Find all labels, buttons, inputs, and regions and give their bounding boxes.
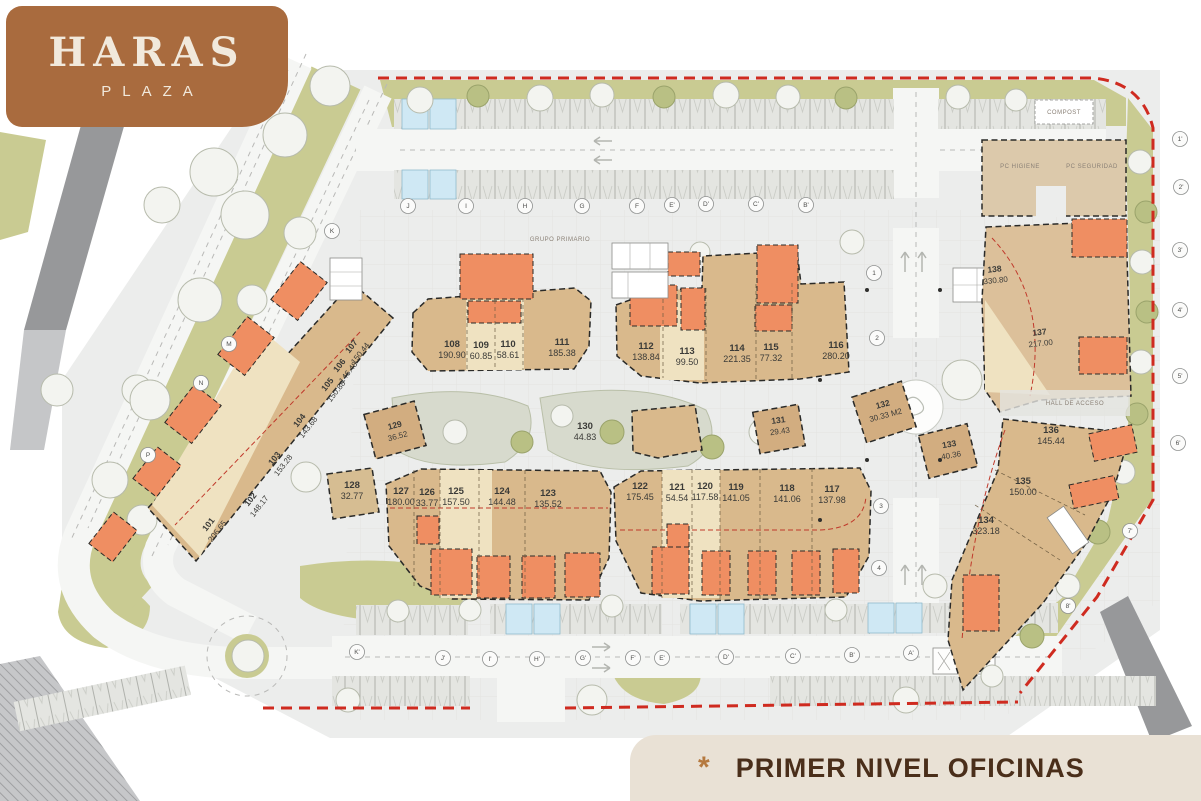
tree-icon [284, 217, 316, 249]
tree-icon [263, 113, 307, 157]
svg-text:4: 4 [877, 565, 881, 572]
tree-icon [1136, 301, 1158, 323]
grid-bubble-bottom: J' [436, 651, 451, 666]
svg-text:5': 5' [1178, 373, 1183, 380]
accessible-parking-stall [430, 170, 456, 199]
grid-bubble-left: N [194, 376, 209, 391]
tree-icon [946, 85, 970, 109]
tree-icon [776, 85, 800, 109]
grid-bubble-right: 4' [1173, 303, 1188, 318]
tree-icon [942, 360, 982, 400]
grid-bubble-center: 4 [872, 561, 887, 576]
plan-legend: * PRIMER NIVEL OFICINAS [630, 735, 1201, 801]
tree-icon [310, 66, 350, 106]
svg-text:113: 113 [679, 346, 694, 357]
svg-text:D': D' [723, 654, 729, 661]
accessible-parking-stall [430, 99, 456, 129]
tree-icon [92, 462, 128, 498]
terrace [431, 549, 472, 595]
svg-text:138: 138 [987, 263, 1002, 274]
tree-icon [232, 640, 264, 672]
pc-notch [1036, 186, 1066, 217]
svg-text:145.44: 145.44 [1037, 436, 1065, 446]
svg-text:K: K [330, 228, 335, 235]
brand-subtitle: PLAZA [90, 83, 204, 100]
svg-text:F': F' [630, 655, 635, 662]
svg-text:323.18: 323.18 [972, 526, 1000, 536]
svg-text:1': 1' [1178, 136, 1183, 143]
terrace [681, 288, 705, 330]
svg-text:117: 117 [824, 484, 839, 495]
brand-logo: HARAS PLAZA [6, 6, 288, 127]
svg-text:120: 120 [697, 481, 713, 492]
grid-bubble-top: E' [665, 198, 680, 213]
svg-text:7': 7' [1128, 528, 1133, 535]
grid-bubble-right: 5' [1173, 369, 1188, 384]
svg-text:K': K' [354, 649, 360, 656]
grid-bubble-bottom: B' [845, 648, 860, 663]
grid-bubble-center: 3 [874, 499, 889, 514]
svg-text:121: 121 [669, 482, 686, 493]
tree-icon [221, 191, 269, 239]
svg-text:3: 3 [879, 503, 883, 510]
svg-text:180.00: 180.00 [387, 497, 415, 507]
brand-title: HARAS [49, 33, 246, 73]
svg-text:F: F [635, 203, 639, 210]
grid-bubble-bottom: H' [530, 652, 545, 667]
tree-icon [601, 595, 623, 617]
tree-icon [1130, 250, 1154, 274]
svg-text:2': 2' [1179, 184, 1184, 191]
tree-icon [590, 83, 614, 107]
svg-text:8': 8' [1066, 603, 1071, 610]
tree-icon [467, 85, 489, 107]
svg-text:150.00: 150.00 [1009, 487, 1037, 497]
tree-icon [1005, 89, 1027, 111]
terrace [833, 549, 859, 593]
svg-text:280.20: 280.20 [822, 351, 850, 361]
terrace [792, 551, 820, 595]
svg-text:C': C' [790, 653, 796, 660]
grid-bubble-right: 8' [1061, 599, 1076, 614]
grid-bubble-top: C' [749, 197, 764, 212]
tree-icon [407, 87, 433, 113]
svg-text:131: 131 [771, 414, 787, 426]
svg-text:60.85: 60.85 [470, 351, 493, 361]
svg-text:H': H' [534, 656, 540, 663]
grid-bubble-top: G [575, 199, 590, 214]
svg-text:123: 123 [540, 488, 556, 499]
svg-text:141.05: 141.05 [722, 493, 750, 503]
svg-text:157.50: 157.50 [442, 497, 470, 507]
column-dot [818, 518, 822, 522]
unit-label-121: 12154.54 [666, 482, 689, 503]
terrace [417, 516, 439, 544]
svg-text:141.06: 141.06 [773, 494, 801, 504]
tree-icon [291, 462, 321, 492]
parking-row [356, 605, 468, 635]
grid-bubble-bottom: K' [350, 645, 365, 660]
tree-icon [130, 380, 170, 420]
svg-text:127: 127 [393, 486, 409, 497]
tree-icon [511, 431, 533, 453]
accessible-parking-stall [402, 170, 428, 199]
svg-text:111: 111 [555, 337, 571, 348]
parking-row [394, 99, 894, 129]
svg-text:6': 6' [1176, 440, 1181, 447]
accessible-parking-stall [534, 604, 560, 634]
tree-icon [527, 85, 553, 111]
plan-level-title: PRIMER NIVEL OFICINAS [736, 753, 1085, 784]
tree-icon [237, 285, 267, 315]
tree-icon [1020, 624, 1044, 648]
svg-text:118: 118 [779, 483, 794, 494]
svg-text:117.58: 117.58 [692, 492, 719, 502]
svg-text:33.77: 33.77 [416, 498, 439, 508]
unit-label-126: 12633.77 [416, 487, 439, 508]
svg-text:D': D' [703, 201, 709, 208]
svg-text:138.84: 138.84 [632, 352, 660, 362]
pc-seguridad-label: PC SEGURIDAD [1066, 164, 1118, 170]
svg-text:4': 4' [1178, 307, 1183, 314]
terrace [702, 551, 730, 595]
svg-text:J': J' [441, 655, 446, 662]
tree-icon [713, 82, 739, 108]
svg-text:G: G [579, 203, 584, 210]
svg-text:E': E' [659, 655, 665, 662]
terrace [460, 254, 533, 299]
svg-text:N: N [199, 380, 204, 387]
svg-text:I: I [465, 203, 467, 210]
column-dot [865, 288, 869, 292]
tree-icon [1129, 350, 1153, 374]
svg-text:2: 2 [875, 335, 879, 342]
svg-text:134: 134 [978, 515, 995, 526]
grid-bubble-left: K [325, 224, 340, 239]
grid-bubble-top: D' [699, 197, 714, 212]
tree-icon [1128, 150, 1152, 174]
column-dot [938, 288, 942, 292]
accessible-parking-stall [690, 604, 716, 634]
svg-text:221.35: 221.35 [723, 354, 751, 364]
svg-text:M: M [226, 341, 231, 348]
svg-text:B': B' [803, 202, 809, 209]
tree-icon [387, 600, 409, 622]
terrace [652, 547, 689, 594]
svg-text:3': 3' [1178, 247, 1183, 254]
accessible-parking-stall [506, 604, 532, 634]
svg-text:115: 115 [763, 342, 779, 353]
tree-icon [653, 86, 675, 108]
tree-icon [190, 148, 238, 196]
svg-text:77.32: 77.32 [760, 353, 783, 363]
hall-de-acceso-label: HALL DE ACCESO [1046, 401, 1104, 407]
svg-text:108: 108 [444, 339, 460, 350]
tree-icon [144, 187, 180, 223]
grid-bubble-right: 7' [1123, 524, 1138, 539]
terrace [1079, 337, 1127, 374]
entrance-south [497, 658, 565, 722]
tree-icon [551, 405, 573, 427]
svg-text:C': C' [753, 201, 759, 208]
svg-text:112: 112 [638, 341, 653, 352]
svg-text:32.77: 32.77 [341, 491, 364, 501]
svg-text:119: 119 [728, 482, 743, 493]
svg-text:185.38: 185.38 [548, 348, 576, 358]
terrace [963, 575, 999, 631]
grid-bubble-center: 2 [870, 331, 885, 346]
svg-text:124: 124 [494, 486, 511, 497]
tree-icon [600, 420, 624, 444]
grid-bubble-bottom: I' [483, 652, 498, 667]
svg-text:128: 128 [344, 480, 360, 491]
tree-icon [443, 420, 467, 444]
svg-text:A': A' [908, 650, 914, 657]
grid-bubble-right: 3' [1173, 243, 1188, 258]
grid-bubble-bottom: A' [904, 646, 919, 661]
grid-bubble-right: 6' [1171, 436, 1186, 451]
svg-text:54.54: 54.54 [666, 493, 689, 503]
grid-bubble-top: J [401, 199, 416, 214]
svg-text:G': G' [580, 655, 586, 662]
grid-bubble-right: 1' [1173, 132, 1188, 147]
terrace [468, 301, 521, 323]
compost-label: COMPOST [1047, 110, 1081, 116]
tree-icon [41, 374, 73, 406]
svg-text:137.98: 137.98 [818, 495, 846, 505]
building-unit-130 [632, 405, 702, 458]
svg-text:110: 110 [500, 339, 515, 350]
grupo-primario-label: GRUPO PRIMARIO [530, 237, 590, 243]
svg-text:190.90: 190.90 [438, 350, 466, 360]
tree-icon [178, 278, 222, 322]
grid-bubble-left: M [222, 337, 237, 352]
terrace [668, 252, 700, 276]
grid-bubble-bottom: F' [626, 651, 641, 666]
terrace [748, 551, 776, 595]
unit-label-109: 10960.85 [470, 340, 493, 361]
grid-bubble-bottom: D' [719, 650, 734, 665]
grid-bubble-top: I [459, 199, 474, 214]
svg-text:109: 109 [473, 340, 489, 351]
grid-bubble-bottom: G' [576, 651, 591, 666]
grid-bubble-bottom: E' [655, 651, 670, 666]
svg-text:136: 136 [1043, 425, 1059, 436]
svg-text:H: H [523, 203, 528, 210]
svg-text:125: 125 [448, 486, 465, 497]
svg-text:I': I' [488, 656, 491, 663]
terrace [757, 245, 798, 303]
grid-bubble-bottom: C' [786, 649, 801, 664]
tree-icon [577, 685, 607, 715]
svg-text:114: 114 [729, 343, 745, 354]
tree-icon [459, 599, 481, 621]
svg-text:E': E' [669, 202, 675, 209]
svg-text:P: P [146, 452, 150, 459]
terrace [755, 305, 792, 331]
tree-icon [835, 87, 857, 109]
svg-text:135.52: 135.52 [534, 499, 562, 509]
svg-text:122: 122 [632, 481, 648, 492]
column-dot [865, 458, 869, 462]
tree-icon [840, 230, 864, 254]
unit-label-128: 12832.77 [341, 480, 364, 501]
tree-icon [700, 435, 724, 459]
grid-bubble-left: P [141, 448, 156, 463]
svg-text:J: J [406, 203, 409, 210]
tree-icon [893, 687, 919, 713]
svg-text:126: 126 [419, 487, 435, 498]
asterisk-icon: * [698, 751, 710, 785]
svg-text:B': B' [849, 652, 855, 659]
svg-text:135: 135 [1015, 476, 1032, 487]
svg-text:130: 130 [577, 421, 593, 432]
svg-text:99.50: 99.50 [676, 357, 699, 367]
pc-higiene-label: PC HIGIENE [1000, 164, 1040, 170]
grid-bubble-top: F [630, 199, 645, 214]
parking-row [394, 170, 894, 199]
tree-icon [923, 574, 947, 598]
svg-text:1: 1 [872, 270, 876, 277]
accessible-parking-stall [868, 603, 894, 633]
accessible-parking-stall [718, 604, 744, 634]
terrace [522, 556, 555, 598]
svg-text:175.45: 175.45 [626, 492, 654, 502]
svg-text:144.48: 144.48 [488, 497, 516, 507]
svg-text:44.83: 44.83 [574, 432, 597, 442]
svg-text:58.61: 58.61 [497, 350, 520, 360]
grid-bubble-top: B' [799, 198, 814, 213]
column-dot [818, 378, 822, 382]
grid-bubble-top: H [518, 199, 533, 214]
accessible-parking-stall [896, 603, 922, 633]
svg-text:116: 116 [828, 340, 843, 351]
terrace [565, 553, 600, 597]
tree-icon [825, 599, 847, 621]
terrace [477, 556, 510, 598]
tree-icon [981, 665, 1003, 687]
screenshot-root: 101206.65 102148.17 103153.28 104143.68 … [0, 0, 1201, 801]
terrace [1072, 219, 1127, 257]
grid-bubble-right: 2' [1174, 180, 1189, 195]
unit-label-130: 13044.83 [574, 421, 597, 442]
svg-text:137: 137 [1032, 326, 1047, 337]
grid-bubble-center: 1 [867, 266, 882, 281]
